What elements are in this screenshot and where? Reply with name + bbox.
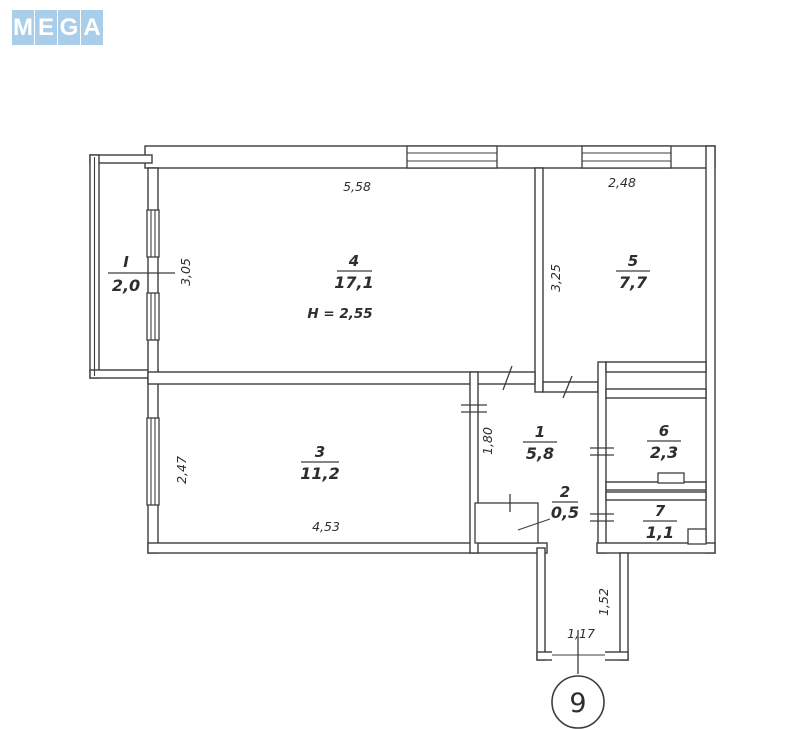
closet2-area: 0,5 <box>551 503 579 522</box>
room4-area: 17,1 <box>334 273 373 292</box>
dim-room3-width: 4,53 <box>312 519 340 534</box>
floor-plan: I 2,0 4 17,1 H = 2,55 5 7,7 3 11,2 1 5,8… <box>0 0 800 729</box>
room7-area: 1,1 <box>646 523 674 542</box>
room3-area: 11,2 <box>300 464 339 483</box>
closet-outline <box>475 494 550 543</box>
floor-number-badge: 9 <box>552 676 604 728</box>
closet2-number: 2 <box>560 483 570 501</box>
hall1-number: 1 <box>535 423 545 441</box>
balcony-number: I <box>123 253 129 271</box>
walls <box>90 146 715 661</box>
floor-number: 9 <box>569 688 586 719</box>
dim-room5-depth: 3,25 <box>548 264 563 292</box>
dim-entry-depth: 1,52 <box>596 588 611 616</box>
room3-number: 3 <box>315 443 325 461</box>
dim-room4-depth: 3,05 <box>178 258 193 286</box>
balcony-area: 2,0 <box>112 276 140 295</box>
dimension-lines <box>108 271 681 521</box>
room-labels: I 2,0 4 17,1 H = 2,55 5 7,7 3 11,2 1 5,8… <box>112 252 678 542</box>
room5-area: 7,7 <box>619 273 648 292</box>
dim-room4-width: 5,58 <box>343 179 371 194</box>
room6-area: 2,3 <box>650 443 678 462</box>
dim-entry-width: 1,17 <box>567 626 595 641</box>
windows <box>147 146 671 505</box>
ceiling-height-note: H = 2,55 <box>307 306 372 322</box>
screenshot-root: M E G A <box>0 0 800 729</box>
hall1-area: 5,8 <box>526 444 554 463</box>
room4-number: 4 <box>348 252 359 270</box>
dim-room5-width: 2,48 <box>608 175 636 190</box>
room6-number: 6 <box>659 422 669 440</box>
dim-hall-depth: 1,80 <box>480 427 495 455</box>
dimension-labels: 5,58 2,48 4,53 1,17 3,05 3,25 2,47 1,80 … <box>174 175 636 641</box>
room5-number: 5 <box>628 252 638 270</box>
dim-room3-depth: 2,47 <box>174 456 189 484</box>
room7-number: 7 <box>655 502 666 520</box>
